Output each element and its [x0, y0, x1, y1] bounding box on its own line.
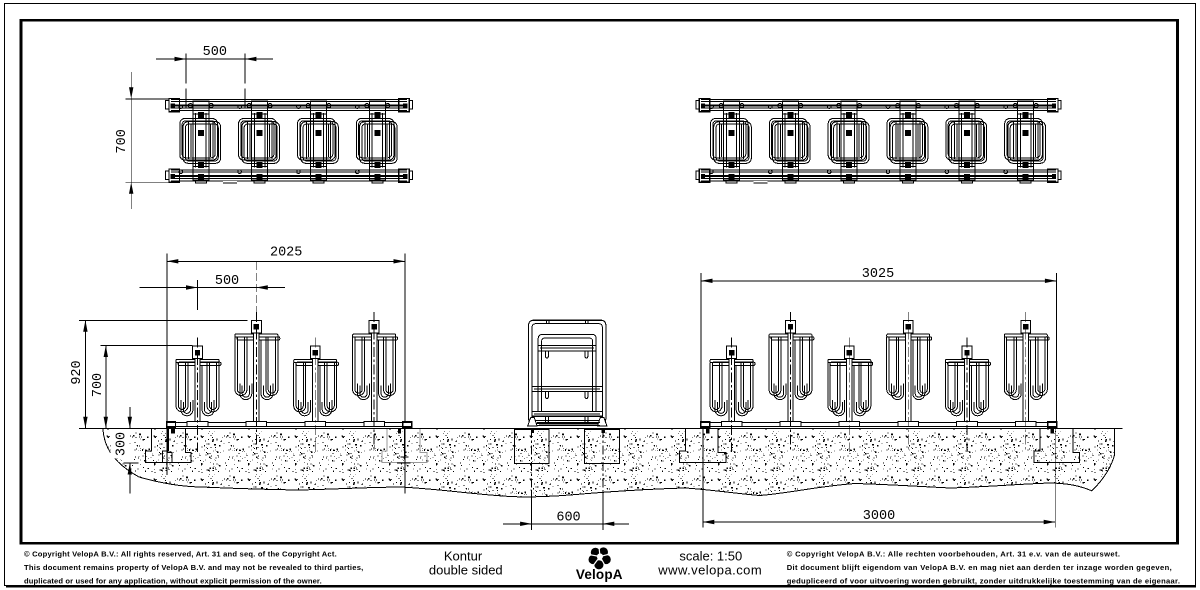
svg-text:300: 300: [115, 432, 130, 456]
svg-text:www.velopa.com: www.velopa.com: [657, 563, 761, 578]
svg-text:700: 700: [91, 373, 106, 397]
svg-text:double sided: double sided: [429, 563, 503, 578]
svg-text:700: 700: [115, 129, 130, 153]
svg-text:Dit document blijft eigendom v: Dit document blijft eigendom van VelopA …: [787, 563, 1172, 572]
svg-text:© Copyright VelopA B.V.: All r: © Copyright VelopA B.V.: All rights rese…: [24, 550, 337, 559]
svg-text:Kontur: Kontur: [444, 549, 483, 564]
svg-text:© Copyright VelopA B.V.: Alle: © Copyright VelopA B.V.: Alle rechten vo…: [787, 550, 1120, 559]
svg-text:This document remains property: This document remains property of VelopA…: [24, 563, 363, 572]
svg-text:3000: 3000: [863, 509, 895, 524]
svg-text:gedupliceerd of voor uitvoerin: gedupliceerd of voor uitvoering worden g…: [787, 576, 1180, 585]
svg-text:500: 500: [215, 274, 239, 289]
svg-text:duplicated or used for any app: duplicated or used for any application, …: [24, 576, 322, 585]
svg-text:VelopA: VelopA: [576, 567, 623, 582]
svg-text:3025: 3025: [862, 267, 894, 282]
svg-text:920: 920: [70, 360, 85, 384]
svg-text:600: 600: [556, 511, 580, 526]
svg-text:500: 500: [203, 45, 227, 60]
svg-text:scale: 1:50: scale: 1:50: [679, 549, 742, 564]
svg-text:2025: 2025: [270, 246, 302, 261]
